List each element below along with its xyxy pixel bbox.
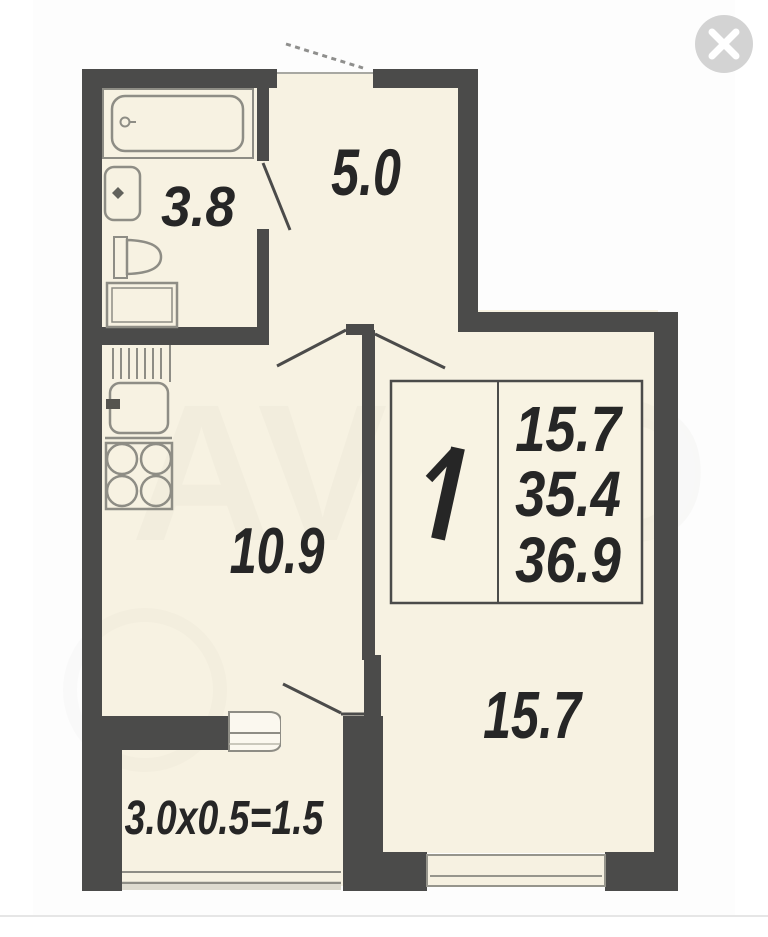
svg-text:36.9: 36.9 [515,524,621,596]
svg-text:10.9: 10.9 [230,515,325,587]
svg-text:15.7: 15.7 [515,393,624,465]
svg-text:3.0x0.5=1.5: 3.0x0.5=1.5 [125,792,325,846]
svg-text:3.8: 3.8 [161,174,235,238]
svg-text:5.0: 5.0 [331,136,401,209]
svg-text:35.4: 35.4 [515,458,621,530]
svg-text:15.7: 15.7 [483,677,583,753]
